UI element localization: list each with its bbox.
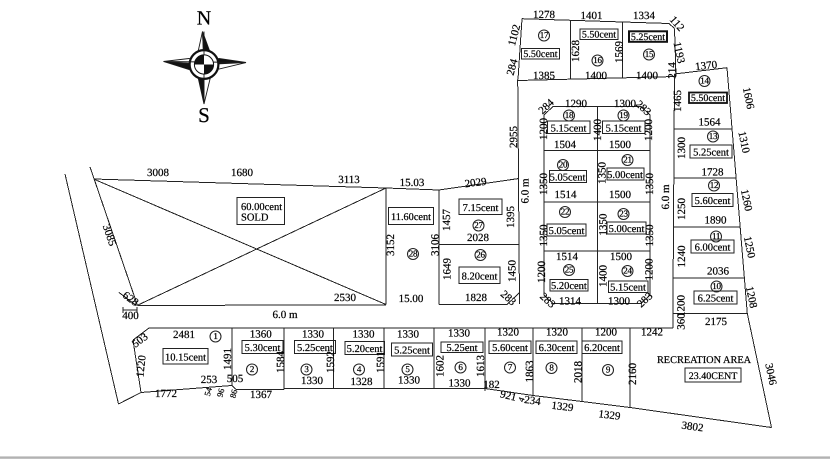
svg-text:1290: 1290 [565,98,588,110]
svg-text:1828: 1828 [465,292,488,304]
svg-text:N: N [197,8,211,30]
svg-text:6.30cent: 6.30cent [539,343,575,354]
svg-text:6.00cent: 6.00cent [695,243,731,254]
svg-text:1370: 1370 [695,59,719,73]
svg-text:1602: 1602 [435,355,447,377]
svg-text:1772: 1772 [155,388,177,400]
svg-text:1514: 1514 [555,189,578,201]
svg-text:1385: 1385 [533,70,556,82]
svg-text:6.0 m: 6.0 m [660,184,672,210]
svg-text:2036: 2036 [707,266,730,278]
svg-text:5.25cent: 5.25cent [394,346,430,357]
svg-text:253: 253 [201,374,218,386]
svg-text:1278: 1278 [533,9,556,21]
svg-text:2028: 2028 [467,232,490,244]
svg-text:2955: 2955 [508,126,520,149]
svg-text:5.50cent: 5.50cent [691,93,725,104]
svg-text:7.15cent: 7.15cent [463,203,499,214]
svg-text:1350: 1350 [597,213,609,236]
svg-text:7: 7 [508,362,513,372]
svg-text:23: 23 [619,209,628,219]
svg-text:1500: 1500 [609,189,632,201]
svg-text:1450: 1450 [507,260,519,283]
svg-text:1300: 1300 [614,98,637,110]
svg-text:9: 9 [606,365,611,375]
svg-text:13: 13 [709,131,718,141]
svg-text:5.50cent: 5.50cent [582,30,616,41]
svg-text:1242: 1242 [641,327,663,339]
svg-text:1606: 1606 [740,86,756,111]
svg-text:6.0 m: 6.0 m [272,309,298,321]
svg-text:1300: 1300 [676,137,688,160]
svg-text:1863: 1863 [524,360,536,383]
svg-text:1300: 1300 [608,296,631,308]
svg-text:1200: 1200 [644,258,656,281]
svg-text:1208: 1208 [743,285,759,310]
svg-text:2018: 2018 [573,361,585,384]
svg-text:14: 14 [700,76,709,86]
svg-text:10.15cent: 10.15cent [165,353,206,364]
svg-text:1320: 1320 [497,327,520,339]
svg-text:20: 20 [559,160,568,170]
svg-text:360: 360 [676,313,688,330]
svg-text:1200: 1200 [536,261,548,284]
svg-text:5.25cent: 5.25cent [693,148,729,159]
svg-text:17: 17 [540,30,549,40]
svg-text:19: 19 [619,110,628,120]
svg-text:1728: 1728 [702,167,725,179]
svg-text:628: 628 [120,289,141,309]
svg-text:1649: 1649 [442,258,454,281]
svg-text:18: 18 [565,110,574,120]
svg-text:11.60cent: 11.60cent [391,212,431,223]
svg-text:1350: 1350 [538,224,550,247]
svg-text:2029: 2029 [464,176,488,191]
svg-text:1220: 1220 [134,354,148,378]
svg-text:1628: 1628 [570,40,582,63]
svg-text:2481: 2481 [173,329,195,341]
svg-text:5.25cent: 5.25cent [631,32,665,43]
svg-text:16: 16 [593,55,602,65]
svg-text:5.05cent: 5.05cent [549,226,585,237]
svg-text:1400: 1400 [585,70,608,82]
svg-text:2: 2 [250,364,254,374]
svg-text:8: 8 [549,363,554,373]
svg-text:400: 400 [122,310,139,322]
svg-text:60.00cent: 60.00cent [241,202,282,213]
svg-text:1328: 1328 [351,376,374,388]
svg-text:1330: 1330 [353,329,376,341]
svg-text:5.20cent: 5.20cent [551,281,587,292]
svg-text:15.00: 15.00 [399,293,424,305]
svg-text:1200: 1200 [643,119,655,142]
svg-text:5.60cent: 5.60cent [492,343,528,354]
svg-text:1314: 1314 [559,296,582,308]
svg-text:3008: 3008 [147,167,170,179]
svg-text:1329: 1329 [598,408,622,423]
svg-text:1240: 1240 [676,245,688,268]
svg-text:2530: 2530 [334,292,357,304]
svg-text:96: 96 [215,387,227,398]
svg-text:1350: 1350 [597,162,609,185]
svg-text:15: 15 [645,49,654,59]
svg-text:1500: 1500 [610,251,633,263]
svg-text:2160: 2160 [627,363,639,386]
svg-text:1250: 1250 [741,235,757,260]
svg-text:5.15cent: 5.15cent [551,123,587,134]
svg-text:1504: 1504 [554,139,577,151]
svg-text:23.40CENT: 23.40CENT [689,371,738,382]
svg-text:1569: 1569 [614,41,626,64]
svg-text:22: 22 [561,207,569,217]
svg-text:1310: 1310 [735,130,751,155]
svg-text:1250: 1250 [676,198,688,221]
svg-text:1350: 1350 [538,173,550,196]
svg-text:1: 1 [213,331,217,341]
svg-text:6: 6 [458,362,463,372]
svg-text:1193: 1193 [671,41,687,65]
svg-text:1350: 1350 [644,224,656,247]
svg-text:1330: 1330 [449,378,472,390]
svg-text:6.20cent: 6.20cent [584,343,620,354]
svg-text:1260: 1260 [738,188,754,213]
svg-text:5.50cent: 5.50cent [523,49,557,60]
svg-text:1514: 1514 [556,251,579,263]
svg-text:5.00cent: 5.00cent [609,224,645,235]
svg-text:1613: 1613 [475,355,487,378]
svg-text:6.25cent: 6.25cent [698,294,734,305]
svg-text:1465: 1465 [672,90,684,113]
svg-text:1329: 1329 [551,400,575,415]
svg-text:5: 5 [405,364,410,374]
svg-text:1890: 1890 [705,215,728,227]
svg-text:505: 505 [227,373,244,385]
svg-text:10: 10 [712,281,721,291]
svg-text:3046: 3046 [762,362,778,387]
svg-text:921: 921 [499,388,518,404]
svg-text:1500: 1500 [609,139,632,151]
svg-text:3802: 3802 [681,420,704,435]
svg-text:1400: 1400 [636,70,659,82]
svg-text:2175: 2175 [705,316,728,328]
svg-text:27: 27 [474,220,483,230]
svg-text:1395: 1395 [505,206,517,229]
svg-text:8.20cent: 8.20cent [462,272,498,283]
svg-text:1330: 1330 [302,329,325,341]
svg-text:1457: 1457 [441,209,453,232]
svg-text:24: 24 [623,266,632,276]
svg-text:5.25ent: 5.25ent [446,343,477,354]
svg-text:1591: 1591 [375,351,387,373]
svg-text:5.15cent: 5.15cent [610,283,646,294]
svg-text:5.15cent: 5.15cent [606,123,642,134]
svg-text:284: 284 [536,96,557,116]
svg-text:4: 4 [357,364,362,374]
svg-text:1401: 1401 [581,10,603,22]
svg-text:3: 3 [304,364,309,374]
svg-text:3152: 3152 [385,234,397,256]
svg-text:503: 503 [130,331,151,351]
svg-text:1680: 1680 [231,167,254,179]
svg-text:112: 112 [667,14,687,34]
svg-text:1320: 1320 [546,327,569,339]
svg-text:1330: 1330 [301,375,324,387]
svg-text:12: 12 [710,180,718,190]
svg-text:283: 283 [498,288,519,308]
svg-text:283: 283 [537,291,558,311]
svg-text:26: 26 [476,250,485,260]
svg-text:1592: 1592 [325,351,337,373]
svg-text:5.05cent: 5.05cent [550,173,586,184]
svg-text:1330: 1330 [448,328,471,340]
svg-text:3113: 3113 [338,174,360,186]
svg-text:6.0 m: 6.0 m [520,178,532,204]
svg-text:5.00cent: 5.00cent [607,170,643,181]
svg-text:1564: 1564 [699,117,722,129]
svg-text:1491: 1491 [222,348,234,370]
svg-text:1330: 1330 [398,375,421,387]
svg-text:S: S [198,103,210,127]
svg-text:1330: 1330 [397,329,420,341]
svg-text:1400: 1400 [597,265,609,288]
svg-text:RECREATION AREA: RECREATION AREA [657,355,752,366]
svg-text:1584: 1584 [275,351,287,374]
svg-text:1350: 1350 [644,173,656,196]
svg-text:182: 182 [483,379,500,391]
svg-text:25: 25 [565,265,574,275]
svg-text:5.60cent: 5.60cent [695,196,731,207]
svg-text:SOLD: SOLD [241,213,269,224]
svg-text:1200: 1200 [595,327,618,339]
svg-text:1367: 1367 [250,389,273,401]
svg-text:3085: 3085 [100,223,119,248]
svg-text:1360: 1360 [250,329,273,341]
svg-text:1200: 1200 [538,118,550,141]
svg-text:28: 28 [409,249,418,259]
svg-text:214: 214 [667,62,679,79]
svg-text:15.03: 15.03 [400,177,425,189]
svg-text:1334: 1334 [633,10,656,22]
svg-text:21: 21 [623,155,631,165]
